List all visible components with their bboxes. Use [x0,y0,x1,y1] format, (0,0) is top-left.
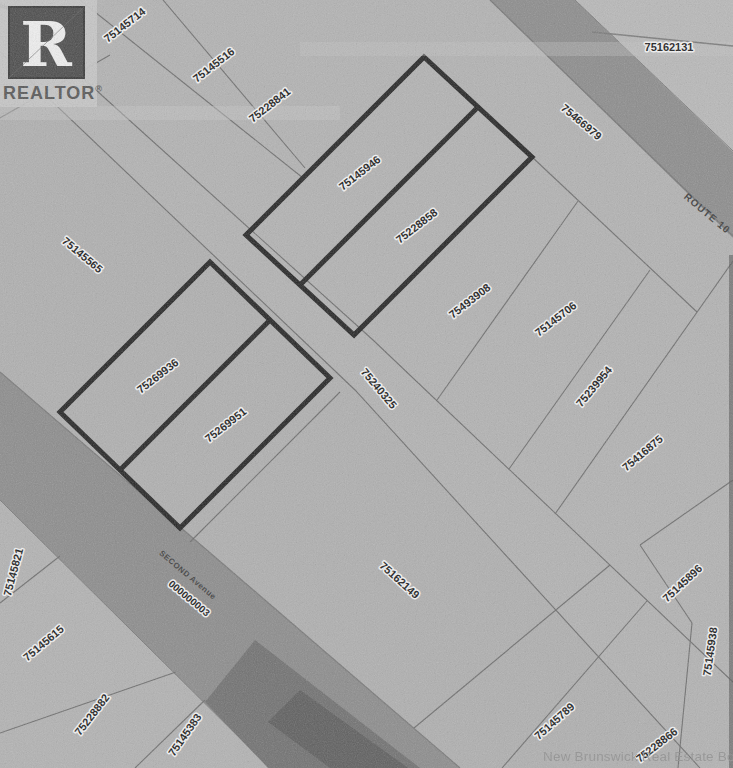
grain-overlay [0,0,733,768]
map-canvas: 75145714 75145516 75228841 75162131 7546… [0,0,733,768]
cadastral-plat-map: 75145714 75145516 75228841 75162131 7546… [0,0,733,768]
